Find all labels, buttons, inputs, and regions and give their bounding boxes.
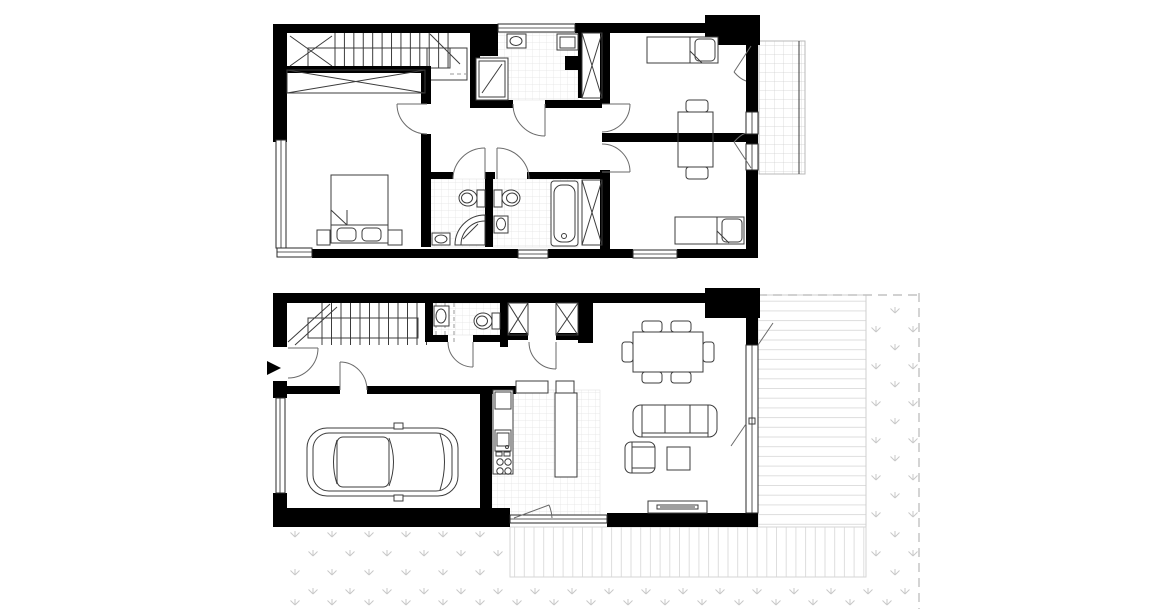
kitchen-cabinet: [516, 381, 548, 393]
wall: [312, 249, 518, 258]
car-mirror: [394, 495, 403, 501]
wall: [421, 134, 431, 247]
toilet-tank: [494, 190, 502, 207]
wall: [575, 23, 707, 33]
wall: [607, 513, 758, 527]
chair: [703, 342, 714, 362]
wall: [485, 179, 493, 247]
wall: [480, 386, 492, 523]
grass: [872, 437, 918, 443]
chair: [671, 372, 691, 383]
wall: [746, 134, 758, 144]
bathtub: [551, 181, 578, 246]
ground-floor: [267, 288, 773, 527]
car-hood-line: [440, 434, 445, 490]
wall: [421, 66, 431, 104]
wall: [508, 333, 528, 340]
door-swing: [340, 362, 367, 390]
paving-strip: [510, 527, 866, 577]
door-swing: [529, 342, 556, 369]
wall: [273, 293, 707, 303]
grass: [872, 326, 918, 332]
grass: [872, 363, 918, 369]
grass: [872, 511, 918, 517]
wall: [545, 100, 602, 108]
grass: [309, 588, 910, 594]
stair-break-line: [295, 307, 337, 345]
wall: [273, 493, 287, 527]
door-swing: [497, 148, 529, 179]
door-swing: [513, 104, 545, 136]
site-plan: [291, 293, 920, 609]
grass: [891, 307, 900, 313]
door-swing: [288, 348, 318, 378]
stair-break-line: [430, 34, 460, 64]
nightstand: [388, 230, 402, 245]
window: [276, 398, 285, 493]
car-windshield: [389, 438, 394, 486]
door-swing: [602, 144, 630, 172]
coffee-table: [667, 447, 690, 470]
grass: [872, 474, 918, 480]
door-swing: [734, 72, 746, 81]
car-body: [307, 428, 458, 496]
kitchen-cabinet: [556, 381, 574, 393]
grass: [291, 599, 892, 605]
chair: [686, 167, 708, 179]
chair: [686, 100, 708, 112]
wall: [602, 133, 746, 142]
nightstand: [317, 230, 330, 245]
door-swing: [602, 104, 630, 132]
chair: [671, 321, 691, 332]
wall: [578, 303, 593, 343]
chair: [642, 372, 662, 383]
terrace-door-leaf: [731, 424, 746, 446]
chair: [622, 342, 633, 362]
wall: [273, 381, 287, 398]
wall: [473, 335, 500, 342]
door-swing: [397, 104, 427, 134]
kitchen-island: [555, 393, 577, 477]
wall: [527, 172, 602, 179]
sofa: [633, 405, 717, 437]
wall: [470, 24, 498, 56]
wall: [746, 170, 758, 258]
wall: [485, 172, 495, 179]
stair-break-line: [288, 304, 330, 342]
wall: [746, 303, 758, 345]
grass: [891, 344, 900, 350]
wall: [287, 386, 340, 394]
door-swing: [453, 148, 485, 179]
wall: [470, 100, 513, 108]
staircase-treads: [322, 303, 427, 345]
wall: [273, 293, 287, 347]
entrance-arrow: [267, 361, 281, 375]
wall: [273, 24, 470, 33]
car-rear-window: [334, 440, 338, 484]
door-swing: [448, 342, 473, 367]
pillow: [337, 228, 356, 241]
wall: [548, 249, 633, 258]
wall: [425, 335, 448, 342]
grass: [872, 400, 918, 406]
stair-rail: [308, 318, 418, 338]
wall: [677, 249, 758, 258]
pillow: [695, 39, 715, 61]
wall: [273, 24, 287, 142]
dining-table: [633, 332, 703, 372]
window: [277, 248, 312, 257]
wall: [421, 172, 453, 179]
car-roof: [337, 437, 389, 487]
grass: [891, 455, 900, 461]
floor-plan-canvas: [0, 0, 1169, 609]
toilet-tank: [477, 190, 485, 207]
grass: [891, 381, 900, 387]
terrace: [758, 295, 866, 527]
toilet-tank: [492, 313, 500, 329]
floor-plan-page: [0, 0, 1169, 609]
wall: [556, 333, 578, 340]
stair-landing: [427, 48, 467, 80]
chair: [642, 321, 662, 332]
pillow: [362, 228, 381, 241]
wall: [285, 508, 510, 527]
balcony: [759, 41, 805, 174]
car-mirror: [394, 423, 403, 429]
wall-pillar: [565, 56, 580, 70]
wall: [500, 303, 508, 347]
grass: [891, 418, 900, 424]
upper-floor: [273, 15, 805, 258]
grass: [891, 492, 900, 498]
staircase-treads: [335, 33, 448, 68]
